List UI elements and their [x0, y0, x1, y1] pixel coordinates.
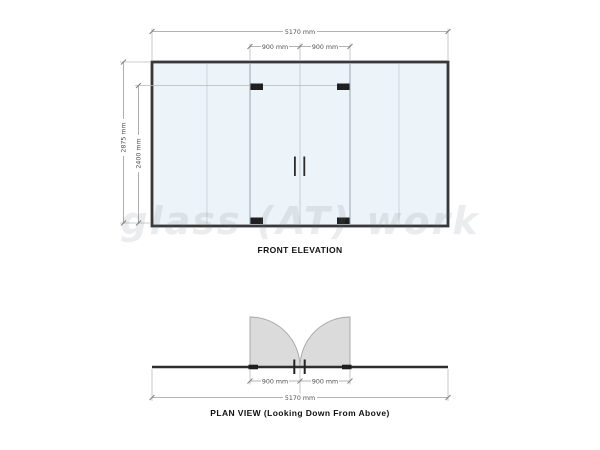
pivot-fitting-left	[249, 365, 259, 370]
dim-label-right-door-width: 900 mm	[312, 44, 338, 51]
bottom-patch-fitting-left	[251, 218, 264, 225]
glass-partition-drawing: 5170 mm 900 mm 900 mm	[0, 0, 600, 450]
dim-label-overall-width: 5170 mm	[285, 395, 315, 402]
door-swing-left	[250, 317, 300, 367]
dim-label-right-door-width: 900 mm	[312, 379, 338, 386]
drawing-page: 5170 mm 900 mm 900 mm	[0, 0, 600, 450]
door-edge-tick-left	[293, 360, 295, 375]
dim-elevation-door-widths: 900 mm 900 mm	[248, 43, 353, 62]
door-handle-right	[303, 157, 305, 177]
dim-label-left-door-width: 900 mm	[262, 44, 288, 51]
top-patch-fitting-right	[337, 84, 350, 91]
dim-label-door-height: 2400 mm	[136, 138, 143, 168]
plan-view-label: PLAN VIEW (Looking Down From Above)	[0, 408, 600, 418]
dim-elevation-door-height: 2400 mm	[135, 83, 143, 226]
front-elevation-view: 5170 mm 900 mm 900 mm	[120, 28, 451, 227]
dim-label-left-door-width: 900 mm	[262, 379, 288, 386]
front-elevation-label: FRONT ELEVATION	[152, 245, 448, 255]
door-edge-tick-right	[304, 360, 306, 375]
plan-view: 900 mm 900 mm 5170 mm	[150, 317, 451, 402]
dim-label-overall-height: 2875 mm	[121, 122, 128, 152]
top-patch-fitting-left	[251, 84, 264, 91]
bottom-patch-fitting-right	[337, 218, 350, 225]
door-swing-right	[300, 317, 350, 367]
door-handle-left	[294, 157, 296, 177]
pivot-fitting-right	[342, 365, 352, 370]
dim-label-overall-width: 5170 mm	[285, 29, 315, 36]
